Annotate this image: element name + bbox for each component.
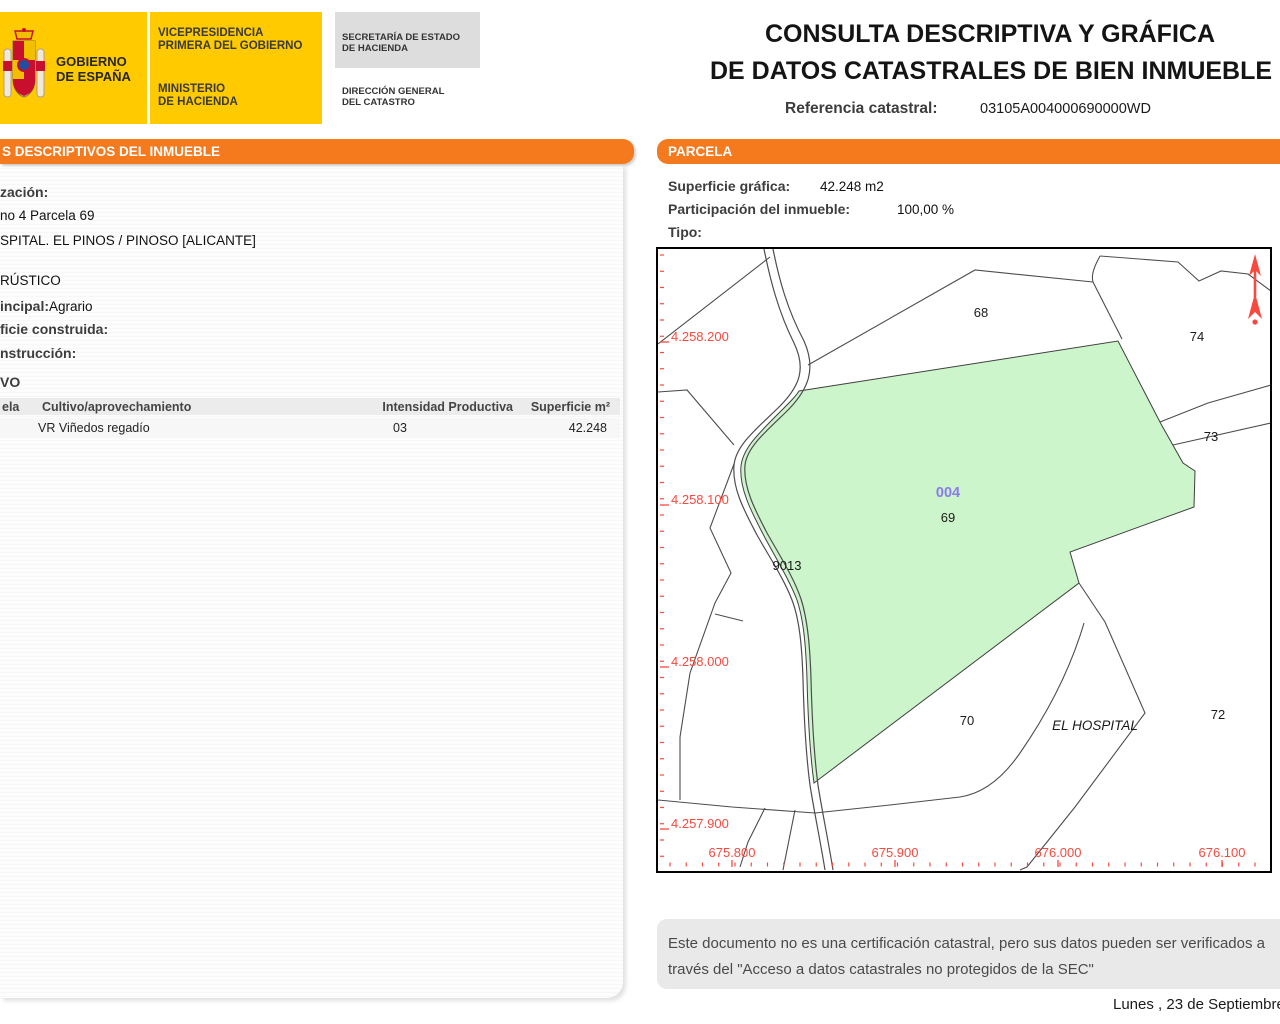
superficie-construida-label: ficie construida: (0, 321, 108, 337)
y-axis-label: 4.258.000 (671, 654, 729, 669)
y-axis-label: 4.258.200 (671, 329, 729, 344)
parcel-number-label: 74 (1190, 329, 1204, 344)
cultivo-heading: VO (0, 374, 20, 390)
parcel-boundary-line (658, 390, 734, 445)
parcel-boundary-line (715, 614, 743, 621)
government-logo-box: GOBIERNO DE ESPAÑA (0, 12, 147, 124)
gobierno-text: GOBIERNO DE ESPAÑA (56, 54, 131, 84)
parcel-boundary-line (1100, 256, 1270, 291)
cadastral-map: 4.258.2004.258.1004.258.0004.257.900675.… (656, 247, 1272, 873)
col-cultivo: Cultivo/aprovechamiento (42, 400, 191, 414)
north-arrow-icon (1248, 254, 1262, 325)
x-axis-label: 676.000 (1035, 845, 1082, 860)
participacion-label: Participación del inmueble: (668, 201, 850, 217)
parcel-boundary-line (783, 810, 795, 870)
direccion-text: DIRECCIÓN GENERAL DEL CATASTRO (342, 86, 444, 108)
parcel-boundary-line (808, 270, 1093, 365)
datos-descriptivos-panel (0, 164, 623, 998)
datos-descriptivos-header-bar: S DESCRIPTIVOS DEL INMUEBLE (0, 139, 634, 164)
ministerio-text: MINISTERIO DE HACIENDA (158, 83, 238, 109)
clase-value: RÚSTICO (0, 273, 61, 288)
catastro-document-page: { "header": { "gobierno": ["GOBIERNO", "… (0, 0, 1280, 1024)
cadastral-map-svg: 4.258.2004.258.1004.258.0004.257.900675.… (658, 249, 1270, 871)
vicepresidencia-text: VICEPRESIDENCIA PRIMERA DEL GOBIERNO (158, 27, 302, 53)
parcel-number-label: 72 (1211, 707, 1225, 722)
localizacion-label: zación: (0, 184, 48, 200)
document-title-line1: CONSULTA DESCRIPTIVA Y GRÁFICA (700, 20, 1280, 49)
secretaria-box: SECRETARÍA DE ESTADO DE HACIENDA (335, 12, 480, 68)
disclaimer-line1: Este documento no es una certificación c… (668, 935, 1265, 952)
localizacion-line2: SPITAL. EL PINOS / PINOSO [ALICANTE] (0, 233, 256, 248)
superficie-grafica-label: Superficie gráfica: (668, 178, 790, 194)
parcel-boundary-line (1092, 256, 1122, 339)
anio-construccion-label: nstrucción: (0, 345, 76, 361)
x-axis-label: 676.100 (1199, 845, 1246, 860)
uso-principal-value: Agrario (49, 299, 93, 314)
y-axis-label: 4.257.900 (671, 816, 729, 831)
parcel-boundary-line (1173, 423, 1270, 445)
document-title-line2: DE DATOS CATASTRALES DE BIEN INMUEBLE (710, 57, 1272, 86)
secretaria-text: SECRETARÍA DE ESTADO DE HACIENDA (342, 32, 460, 54)
parcela-header-bar: PARCELA (657, 139, 1280, 164)
col-intensidad: Intensidad Productiva (378, 400, 513, 414)
spain-coat-of-arms-icon (1, 27, 47, 109)
participacion-value: 100,00 % (897, 202, 954, 217)
referencia-catastral-label: Referencia catastral: (785, 100, 938, 118)
uso-principal-label: incipal: (0, 298, 49, 314)
parcel-number-label: 73 (1204, 429, 1218, 444)
row-cultivo-value: VR Viñedos regadío (38, 421, 150, 435)
parcel-boundary-line (658, 800, 815, 813)
disclaimer-line2: través del "Acceso a datos catastrales n… (668, 961, 1094, 978)
parcel-number-label: 9013 (773, 558, 802, 573)
row-superficie-value: 42.248 (522, 421, 607, 435)
parcel-boundary-line (1160, 385, 1270, 422)
parcela-header-label: PARCELA (657, 144, 732, 159)
localizacion-line1: no 4 Parcela 69 (0, 208, 95, 223)
col-superficie: Superficie m² (520, 400, 610, 414)
datos-descriptivos-header-label: S DESCRIPTIVOS DEL INMUEBLE (0, 144, 220, 159)
parcel-boundary-line (680, 464, 734, 800)
col-subparcela: ela (2, 400, 19, 414)
subject-parcel-number-label: 69 (941, 510, 955, 525)
parcel-number-label: 70 (960, 713, 974, 728)
tipo-label: Tipo: (668, 224, 702, 240)
disclaimer-box: Este documento no es una certificación c… (657, 919, 1280, 989)
ministry-box: VICEPRESIDENCIA PRIMERA DEL GOBIERNO MIN… (150, 12, 322, 124)
cultivo-table-row: VR Viñedos regadío 03 42.248 (0, 418, 620, 438)
direccion-box: DIRECCIÓN GENERAL DEL CATASTRO (335, 72, 480, 124)
row-intensidad-value: 03 (393, 421, 407, 435)
superficie-grafica-value: 42.248 m2 (820, 179, 884, 194)
place-name-label: EL HOSPITAL (1052, 718, 1138, 733)
document-date: Lunes , 23 de Septiembre (1113, 996, 1280, 1013)
x-axis-label: 675.900 (872, 845, 919, 860)
parcel-number-label: 68 (974, 305, 988, 320)
x-axis-label: 675.800 (709, 845, 756, 860)
referencia-catastral-value: 03105A004000690000WD (980, 101, 1151, 117)
cultivo-table-header: ela Cultivo/aprovechamiento Intensidad P… (0, 398, 620, 415)
y-axis-label: 4.258.100 (671, 492, 729, 507)
subject-parcel-code-label: 004 (936, 485, 960, 501)
